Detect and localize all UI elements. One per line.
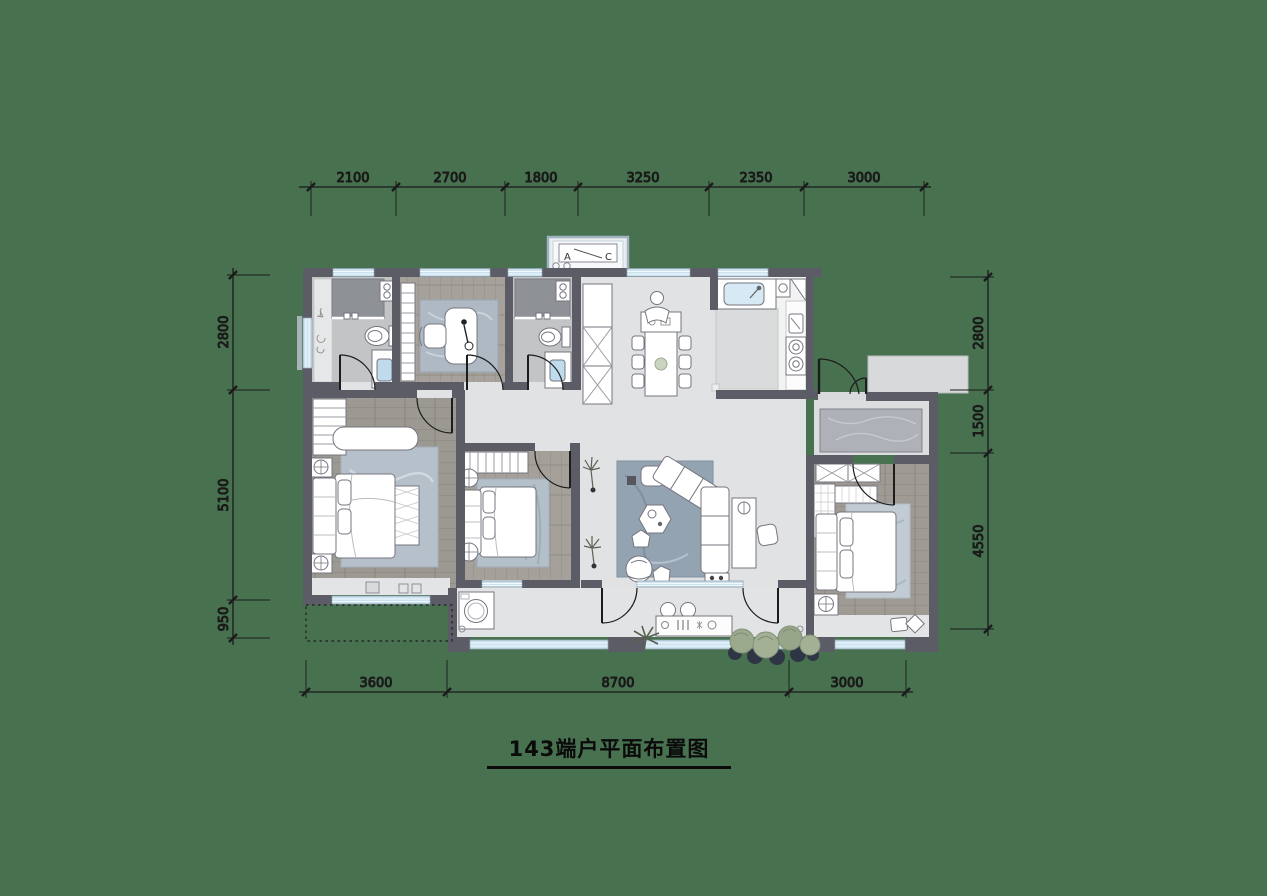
pillow [338,509,351,534]
dim-label: 5100 [217,478,232,511]
planter-pot [681,603,696,618]
pillow [483,491,495,513]
dim-label: 4550 [972,524,987,557]
page-title: 143端户平面布置图 [487,733,731,769]
dim-label: 1500 [972,404,987,437]
dim-label: 1800 [524,171,557,186]
dim-right: 2800 1500 4550 [950,270,994,636]
dim-label: 3250 [626,171,659,186]
storage-cabinet [583,284,612,404]
daybed-bench [333,427,418,450]
bath-ledge [314,279,332,382]
shower-handle [352,313,358,319]
shower-area [332,279,384,318]
pillow [338,480,351,505]
window-top-2 [420,269,490,277]
pillow [840,550,853,578]
lounge-chair [626,556,652,582]
toilet-icon [365,327,389,346]
dining-chair [679,336,691,350]
entry-landing [868,356,968,393]
dim-label: 3600 [359,676,392,691]
window-master [332,596,430,604]
decor-tray [366,582,379,593]
sliding-door-living-balcony [637,581,743,587]
desk-chair [424,324,446,348]
entry-door [819,359,866,394]
dim-top: 2100 2700 1800 3250 2350 3000 [299,171,931,216]
dim-label: 2350 [739,171,772,186]
dining-chair [679,374,691,388]
dim-label: 2800 [217,315,232,348]
dim-bottom: 3600 8700 3000 [299,660,913,698]
dining-chair [679,355,691,369]
dining-chair [632,336,644,350]
sink-icon [377,359,392,381]
dim-label: 3000 [847,171,880,186]
floor-plan-canvas: A C [0,0,1267,896]
dim-label: 3000 [830,676,863,691]
porch-marble-mat [820,409,922,452]
stove [786,337,806,375]
ac-outdoor-platform: A C [548,237,628,273]
window-bedroom2 [482,581,522,587]
toilet-icon [539,328,561,346]
small-fixture [776,279,790,297]
pillow [483,517,495,539]
sofa-straight-section [701,487,729,573]
kitchen-floor-mat [716,309,778,389]
shower-handle [344,313,350,319]
window-top-4 [627,269,690,277]
window-top-5 [718,269,768,277]
dim-label: 2700 [433,171,466,186]
bay-projection-outline [306,605,452,641]
dim-left: 2800 5100 950 [217,268,270,645]
ac-label-a: A [564,252,571,263]
centerpiece-icon [655,358,667,370]
desk-chair [756,523,778,546]
window-top-1 [333,269,374,277]
window-bedroom3 [835,640,905,649]
dim-label: 950 [217,607,232,632]
window-top-3 [508,269,542,277]
person-icon [651,292,664,305]
dim-label: 8700 [601,676,634,691]
pillow [840,518,853,546]
dim-label: 2800 [972,316,987,349]
floor-lamp-icon [627,476,636,485]
dim-label: 2100 [336,171,369,186]
dining-chair [632,355,644,369]
ac-label-c: C [605,252,612,263]
balcony-counter [656,616,732,636]
floor-cushion [890,617,907,632]
master-window-seat [312,578,450,595]
dining-chair [632,374,644,388]
bookshelf [401,283,415,381]
window-bath-left [297,316,312,370]
planter-pot [661,603,676,618]
toilet-tank [562,327,570,347]
window-balcony-1 [470,640,608,649]
